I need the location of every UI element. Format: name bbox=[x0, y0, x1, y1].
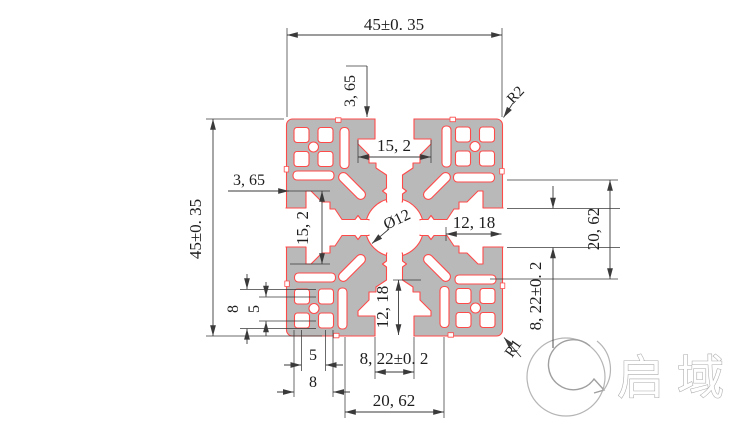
dim-cavity-width-top: 15, 2 bbox=[377, 136, 411, 155]
logo-q-swirl-icon bbox=[548, 340, 604, 393]
dim-corner-hole-pitch-bottom: 5 bbox=[309, 347, 317, 364]
dim-slot-depth-bottom: 12, 18 bbox=[373, 286, 392, 329]
dim-corner-hole-outer-bottom: 8 bbox=[309, 374, 317, 391]
dim-overall-width-top: 45±0. 35 bbox=[364, 15, 424, 34]
dim-corner-hole-pitch-vertical: 5 bbox=[246, 305, 263, 313]
dim-lip-depth-top: 3, 65 bbox=[342, 75, 359, 107]
dim-lip-depth-left: 3, 65 bbox=[233, 172, 265, 189]
dim-inner-corner-radius: R1 bbox=[502, 337, 525, 361]
aluminum-profile-drawing: 启域 bbox=[0, 0, 751, 428]
dim-outer-corner-radius: R2 bbox=[504, 83, 528, 107]
dimension-labels: 45±0. 35 45±0. 35 3, 65 3, 65 15, 2 15, … bbox=[186, 15, 603, 410]
dim-corner-hole-outer-vertical: 8 bbox=[225, 305, 242, 313]
watermark-logo: 启域 bbox=[527, 338, 737, 416]
logo-circle-icon bbox=[527, 338, 605, 416]
dim-slot-span-bottom: 20, 62 bbox=[373, 391, 416, 410]
dim-slot-opening-right: 8, 22±0. 2 bbox=[526, 262, 545, 331]
technical-drawing-page: 启域 bbox=[0, 0, 751, 428]
dim-slot-depth-right: 12, 18 bbox=[453, 213, 496, 232]
watermark-brand-text: 启域 bbox=[617, 351, 737, 406]
dim-slot-span-right: 20, 62 bbox=[584, 208, 603, 251]
dim-cavity-width-left: 15, 2 bbox=[293, 211, 312, 245]
dim-slot-opening-bottom: 8, 22±0. 2 bbox=[360, 349, 429, 368]
dim-overall-height-left: 45±0. 35 bbox=[186, 199, 205, 259]
